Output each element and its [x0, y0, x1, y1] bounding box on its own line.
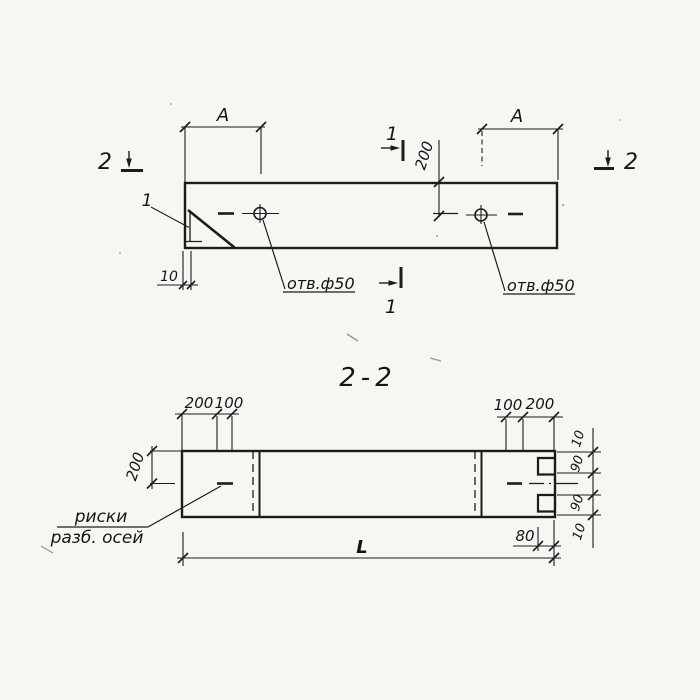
- dim-chain-right: 10 90 90 10: [557, 428, 601, 548]
- corner-chamfer-detail: [186, 210, 235, 248]
- section-title: 2-2: [339, 363, 396, 393]
- scanned-drawing-page: 1 А А: [0, 0, 700, 700]
- joint-lines-right: [475, 451, 482, 517]
- arrow-right-icon: [389, 280, 399, 286]
- detail-1-callout: 1: [142, 191, 189, 228]
- chain-value-2: 90: [568, 493, 587, 513]
- dim-a-right: А: [477, 106, 563, 180]
- top-view: 1 А А: [98, 105, 638, 318]
- section-marker-1-top: 1: [381, 123, 403, 161]
- dim-200-plan: 200: [411, 139, 444, 221]
- detail-1-label: 1: [142, 191, 153, 211]
- dim-a-left-value: А: [216, 105, 229, 126]
- dim-a-right-value: А: [510, 106, 523, 127]
- engineering-drawing: 1 А А: [0, 0, 700, 700]
- dim-top-left-group: 200 100: [175, 394, 243, 451]
- dim-top-right-group: 100 200: [494, 395, 563, 451]
- panel-outline-plan: [185, 183, 557, 248]
- arrow-right-icon: [391, 145, 401, 151]
- section-view: 200 100 100 200 200 10 90 90 10: [50, 394, 601, 566]
- dim-left-outer-value: 200: [185, 394, 214, 412]
- dim-right-outer-value: 200: [526, 395, 555, 413]
- axis-note-line1: риски: [74, 507, 128, 527]
- marker-2-right-label: 2: [624, 150, 638, 175]
- hole-callout-right: отв.ф50: [484, 222, 575, 295]
- section-marker-2-right: 2: [594, 150, 638, 175]
- section-marker-2-left: 2: [98, 150, 143, 175]
- dim-right-inner-value: 100: [494, 396, 523, 414]
- chain-value-3: 10: [570, 522, 589, 542]
- dim-left-inner-value: 100: [215, 394, 244, 412]
- arrow-down-icon: [126, 159, 132, 169]
- section-marker-1-bottom: 1: [379, 267, 401, 318]
- chain-value-1: 90: [568, 454, 587, 474]
- dim-a-left: А: [180, 105, 266, 182]
- dim-height-value: 200: [122, 450, 148, 483]
- hole-callout-left-text: отв.ф50: [287, 274, 355, 293]
- marker-2-left-label: 2: [98, 150, 112, 175]
- marker-1-top-label: 1: [386, 123, 398, 145]
- axis-note-line2: разб. осей: [50, 528, 144, 548]
- hole-callout-right-text: отв.ф50: [507, 276, 575, 295]
- panel-outline-section: [182, 451, 555, 517]
- dim-10-plan: 10: [157, 251, 198, 290]
- arrow-down-icon: [605, 158, 611, 168]
- end-notches: [538, 458, 555, 512]
- chain-value-0: 10: [569, 429, 588, 449]
- marker-1-bottom-label: 1: [385, 296, 397, 318]
- dim-length-value: L: [356, 537, 367, 558]
- dim-200-plan-value: 200: [411, 139, 437, 172]
- joint-lines-left: [253, 451, 260, 517]
- hole-right: [433, 205, 523, 224]
- hole-left: [218, 204, 279, 223]
- dim-10-value: 10: [160, 269, 178, 285]
- dim-length: L: [177, 520, 561, 566]
- dim-80-value: 80: [515, 527, 534, 545]
- dim-height-left: 200: [122, 446, 181, 489]
- hole-callout-left: отв.ф50: [263, 220, 355, 293]
